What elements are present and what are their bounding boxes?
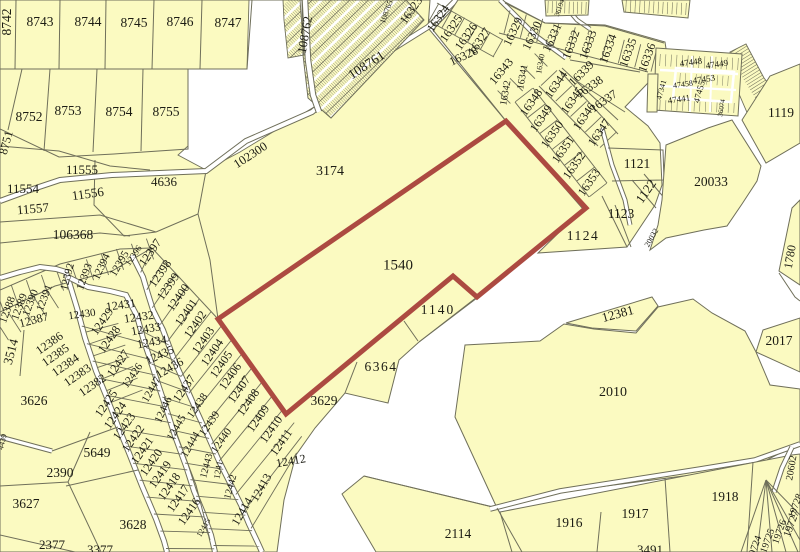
- svg-text:3627: 3627: [13, 496, 40, 511]
- svg-text:11555: 11555: [66, 162, 98, 177]
- svg-text:1918: 1918: [712, 489, 739, 504]
- svg-text:1124: 1124: [567, 228, 600, 243]
- svg-text:11554: 11554: [7, 181, 40, 196]
- svg-text:3629: 3629: [311, 393, 338, 408]
- svg-text:3626: 3626: [21, 393, 48, 408]
- svg-text:2114: 2114: [445, 526, 472, 541]
- svg-text:8743: 8743: [27, 14, 54, 29]
- svg-text:2390: 2390: [47, 465, 74, 480]
- svg-text:1123: 1123: [608, 206, 635, 221]
- svg-text:3377: 3377: [87, 542, 114, 552]
- svg-text:2017: 2017: [766, 333, 793, 348]
- svg-text:8754: 8754: [106, 104, 133, 119]
- svg-text:3628: 3628: [120, 517, 147, 532]
- svg-text:8753: 8753: [55, 103, 82, 118]
- svg-text:4636: 4636: [151, 174, 178, 189]
- svg-text:20033: 20033: [694, 174, 728, 189]
- svg-text:1121: 1121: [624, 156, 651, 171]
- svg-text:2377: 2377: [39, 537, 66, 552]
- svg-text:3491: 3491: [637, 542, 663, 552]
- svg-text:2010: 2010: [599, 385, 627, 400]
- svg-text:3174: 3174: [316, 164, 344, 179]
- svg-text:8755: 8755: [153, 104, 180, 119]
- svg-text:8747: 8747: [215, 15, 242, 30]
- svg-text:1119: 1119: [768, 105, 794, 120]
- svg-text:1140: 1140: [421, 302, 456, 317]
- svg-text:8746: 8746: [167, 14, 194, 29]
- svg-text:8752: 8752: [16, 109, 43, 124]
- svg-text:1916: 1916: [556, 515, 583, 530]
- svg-text:1917: 1917: [622, 506, 649, 521]
- svg-text:6364: 6364: [365, 359, 398, 374]
- svg-text:8742: 8742: [0, 9, 14, 36]
- svg-text:5649: 5649: [84, 445, 111, 460]
- svg-text:106368: 106368: [53, 227, 94, 242]
- svg-text:11557: 11557: [16, 200, 50, 218]
- svg-text:8745: 8745: [121, 15, 148, 30]
- svg-text:8744: 8744: [75, 14, 102, 29]
- svg-text:1540: 1540: [383, 257, 413, 273]
